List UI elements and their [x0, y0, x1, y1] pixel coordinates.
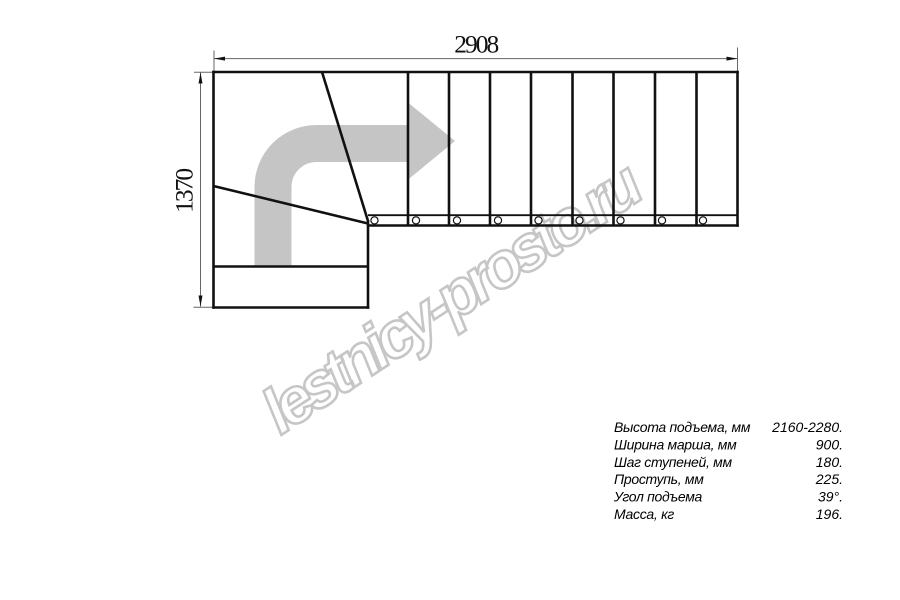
svg-text:2908: 2908 [454, 30, 498, 59]
svg-text:Шаг ступеней, мм: Шаг ступеней, мм [614, 454, 732, 470]
svg-text:Масса, кг: Масса, кг [614, 506, 674, 522]
svg-text:1370: 1370 [169, 169, 198, 213]
svg-text:Ширина марша, мм: Ширина марша, мм [614, 436, 737, 452]
svg-text:Угол подъема: Угол подъема [613, 489, 703, 505]
svg-text:225.: 225. [815, 471, 843, 487]
svg-text:900.: 900. [816, 436, 843, 452]
svg-text:39°.: 39°. [818, 489, 843, 505]
svg-text:2160-2280.: 2160-2280. [771, 419, 843, 435]
svg-text:Высота подъема, мм: Высота подъема, мм [614, 419, 751, 435]
svg-text:Проступь, мм: Проступь, мм [614, 471, 704, 487]
svg-text:180.: 180. [816, 454, 843, 470]
svg-text:196.: 196. [816, 506, 843, 522]
